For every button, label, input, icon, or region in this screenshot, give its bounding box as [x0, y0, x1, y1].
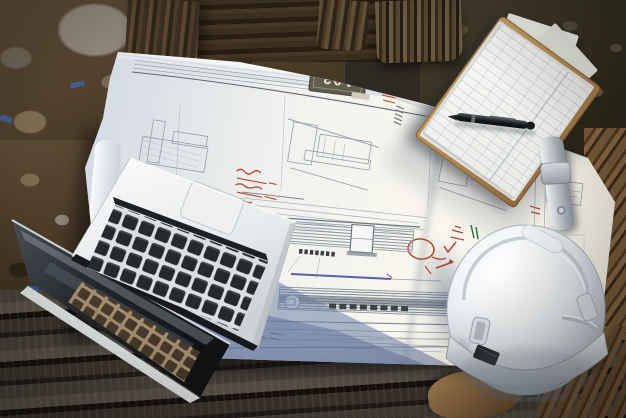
construction-site-photo: A03 [0, 0, 626, 418]
pen-cap [526, 121, 536, 130]
safety-helmet [444, 222, 612, 402]
